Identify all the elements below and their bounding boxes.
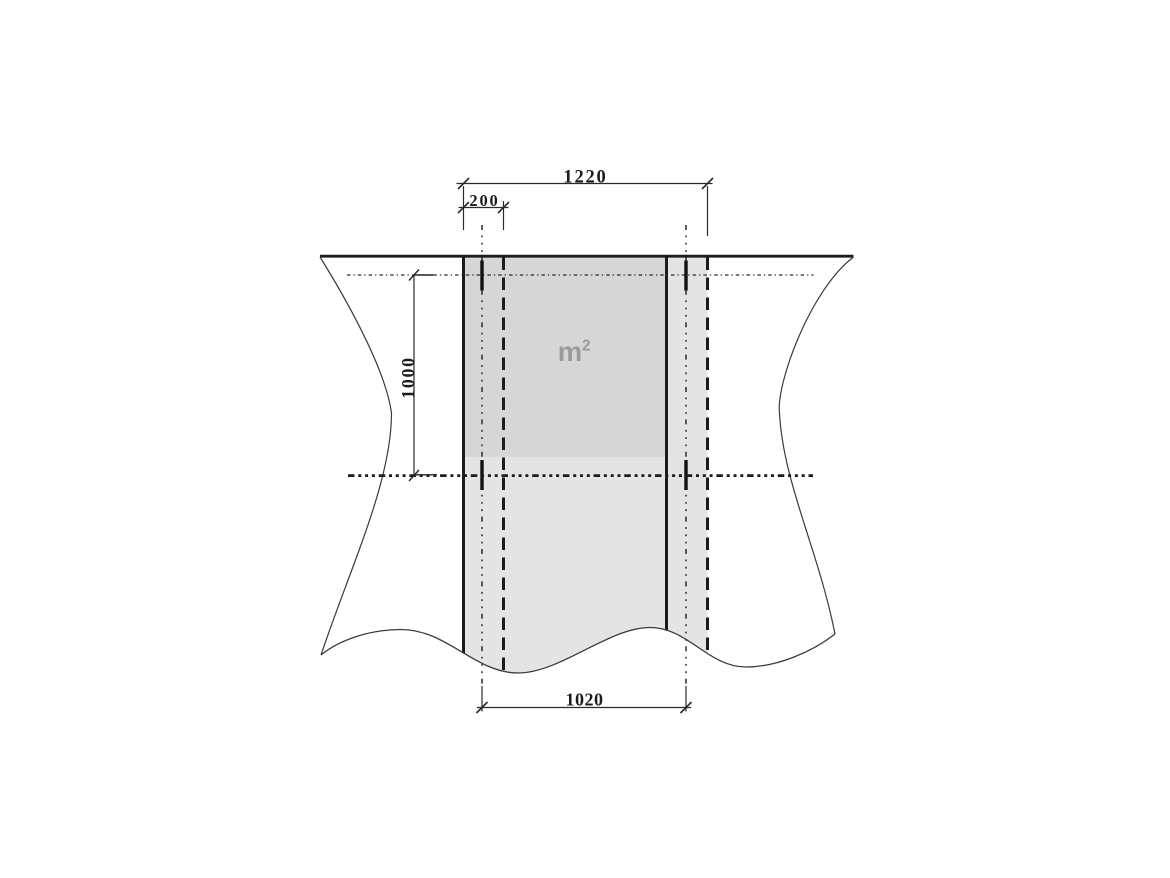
svg-text:m: m: [558, 336, 582, 367]
svg-text:1220: 1220: [563, 168, 607, 188]
svg-text:1000: 1000: [398, 356, 418, 398]
svg-text:2: 2: [582, 338, 591, 355]
svg-text:200: 200: [469, 191, 499, 210]
svg-text:1020: 1020: [566, 690, 604, 710]
